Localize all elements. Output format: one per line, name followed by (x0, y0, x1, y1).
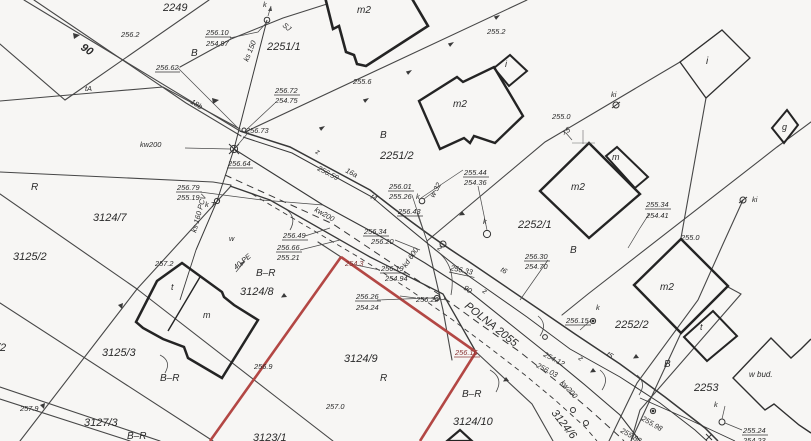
svg-text:256.15: 256.15 (565, 316, 589, 325)
svg-text:256.62: 256.62 (155, 63, 179, 72)
svg-text:R: R (380, 373, 387, 384)
svg-text:255.6: 255.6 (352, 77, 372, 86)
svg-text:2253: 2253 (693, 382, 719, 394)
svg-text:B–R: B–R (160, 373, 179, 384)
svg-text:m2: m2 (453, 99, 467, 110)
svg-text:B: B (380, 130, 387, 141)
svg-text:254.24: 254.24 (355, 303, 379, 312)
svg-text:256.2: 256.2 (120, 30, 140, 39)
svg-text:256.66: 256.66 (276, 243, 300, 252)
svg-text:2252/2: 2252/2 (614, 319, 649, 331)
svg-text:2249: 2249 (162, 2, 187, 14)
svg-text:3127/3: 3127/3 (84, 417, 119, 429)
svg-text:m: m (612, 152, 620, 162)
svg-text:256.64: 256.64 (227, 159, 251, 168)
svg-text:kw200: kw200 (140, 140, 162, 149)
svg-text:256.34: 256.34 (363, 227, 387, 236)
svg-text:w bud.: w bud. (749, 370, 773, 379)
svg-text:3123/1: 3123/1 (253, 432, 287, 441)
svg-text:3125/2: 3125/2 (13, 251, 47, 263)
svg-text:255.44: 255.44 (463, 168, 487, 177)
svg-text:256.43: 256.43 (397, 207, 421, 216)
svg-text:255.26: 255.26 (388, 192, 412, 201)
svg-text:255.2: 255.2 (486, 27, 506, 36)
svg-text:k: k (483, 217, 487, 226)
svg-text:3124/7: 3124/7 (93, 212, 128, 224)
svg-text:256.9: 256.9 (253, 362, 273, 371)
svg-text:2251/2: 2251/2 (379, 150, 414, 162)
svg-text:R: R (31, 182, 38, 193)
svg-text:/2: /2 (0, 342, 6, 354)
svg-text:256.01: 256.01 (388, 182, 412, 191)
svg-text:255.21: 255.21 (276, 253, 300, 262)
svg-text:2251/1: 2251/1 (266, 41, 301, 53)
svg-text:3124/8: 3124/8 (240, 286, 275, 298)
svg-text:B: B (664, 359, 671, 370)
svg-text:255.34: 255.34 (645, 200, 669, 209)
svg-text:B: B (570, 245, 577, 256)
svg-text:m2: m2 (660, 282, 674, 293)
svg-text:256.79: 256.79 (176, 183, 200, 192)
svg-text:257.9: 257.9 (19, 404, 39, 413)
svg-text:254.75: 254.75 (274, 96, 298, 105)
svg-text:3125/3: 3125/3 (102, 347, 137, 359)
svg-text:m: m (203, 310, 211, 320)
svg-text:m2: m2 (571, 182, 585, 193)
svg-text:257.2: 257.2 (154, 259, 174, 268)
svg-text:g: g (782, 122, 787, 132)
svg-text:B–R: B–R (127, 431, 146, 441)
svg-text:254.3: 254.3 (344, 259, 364, 268)
svg-text:255.0: 255.0 (551, 112, 571, 121)
svg-text:257.0: 257.0 (325, 402, 345, 411)
svg-text:256.26: 256.26 (355, 292, 379, 301)
svg-text:254.70: 254.70 (524, 262, 548, 271)
svg-text:ki: ki (611, 90, 617, 99)
svg-text:254.94: 254.94 (384, 274, 408, 283)
svg-text:ki: ki (752, 195, 758, 204)
svg-text:254.36: 254.36 (463, 178, 487, 187)
svg-text:k T: k T (205, 200, 216, 209)
svg-text:254.41: 254.41 (645, 211, 669, 220)
svg-text:256.19: 256.19 (380, 264, 404, 273)
svg-text:254.23: 254.23 (742, 436, 766, 441)
svg-text:k: k (714, 400, 718, 409)
svg-text:k: k (416, 192, 420, 201)
svg-text:B–R: B–R (256, 268, 275, 279)
svg-text:m2: m2 (357, 5, 371, 16)
svg-text:B: B (191, 48, 198, 59)
svg-text:tA: tA (85, 84, 92, 93)
svg-text:256.16: 256.16 (454, 348, 478, 357)
svg-text:k: k (263, 0, 267, 9)
svg-text:256.20: 256.20 (370, 237, 394, 246)
svg-text:256.73: 256.73 (245, 126, 269, 135)
svg-text:B–R: B–R (462, 389, 481, 400)
svg-text:3124/10: 3124/10 (453, 416, 494, 428)
svg-text:256.30: 256.30 (524, 252, 548, 261)
svg-text:255.0: 255.0 (680, 233, 700, 242)
svg-text:256.72: 256.72 (274, 86, 298, 95)
svg-text:3124/9: 3124/9 (344, 353, 378, 365)
svg-text:256.10: 256.10 (205, 28, 229, 37)
svg-text:256.22: 256.22 (415, 295, 439, 304)
svg-text:256.49: 256.49 (282, 231, 306, 240)
svg-text:k: k (596, 303, 600, 312)
svg-text:255.19: 255.19 (176, 193, 200, 202)
svg-text:255.24: 255.24 (742, 426, 766, 435)
svg-text:254,97: 254,97 (205, 39, 229, 48)
svg-text:w: w (229, 234, 235, 243)
svg-text:2252/1: 2252/1 (517, 219, 552, 231)
